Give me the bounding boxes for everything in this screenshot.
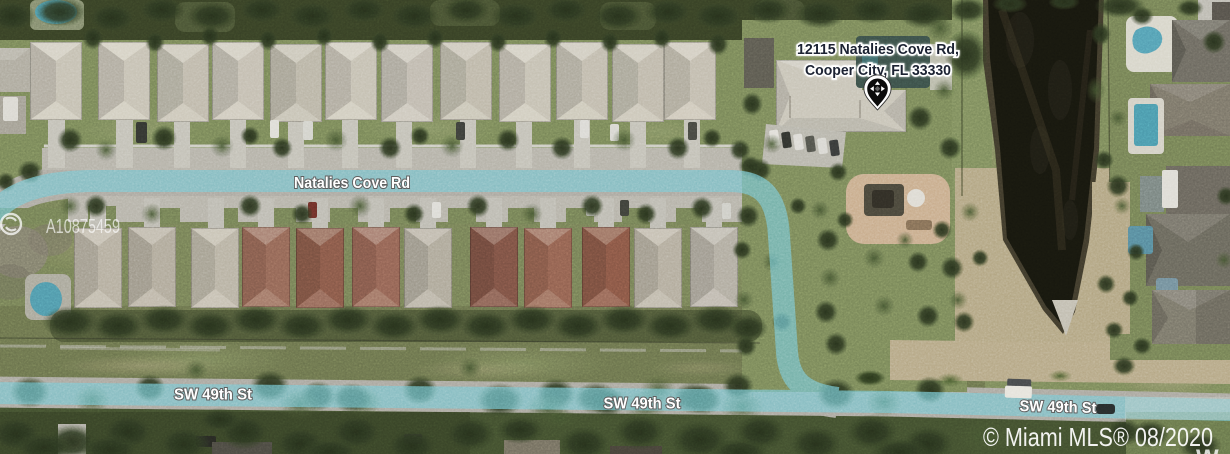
- svg-text:A10875459: A10875459: [46, 216, 120, 238]
- svg-text:Natalies Cove Rd: Natalies Cove Rd: [294, 175, 410, 192]
- svg-text:W: W: [1196, 445, 1219, 454]
- svg-text:SW 49th St: SW 49th St: [1019, 398, 1096, 417]
- svg-text:© Miami MLS® 08/2020: © Miami MLS® 08/2020: [983, 422, 1213, 452]
- svg-text:SW 49th St: SW 49th St: [604, 396, 681, 413]
- svg-text:SW 49th St: SW 49th St: [174, 387, 252, 404]
- svg-text:12115 Natalies Cove Rd,: 12115 Natalies Cove Rd,: [797, 42, 959, 58]
